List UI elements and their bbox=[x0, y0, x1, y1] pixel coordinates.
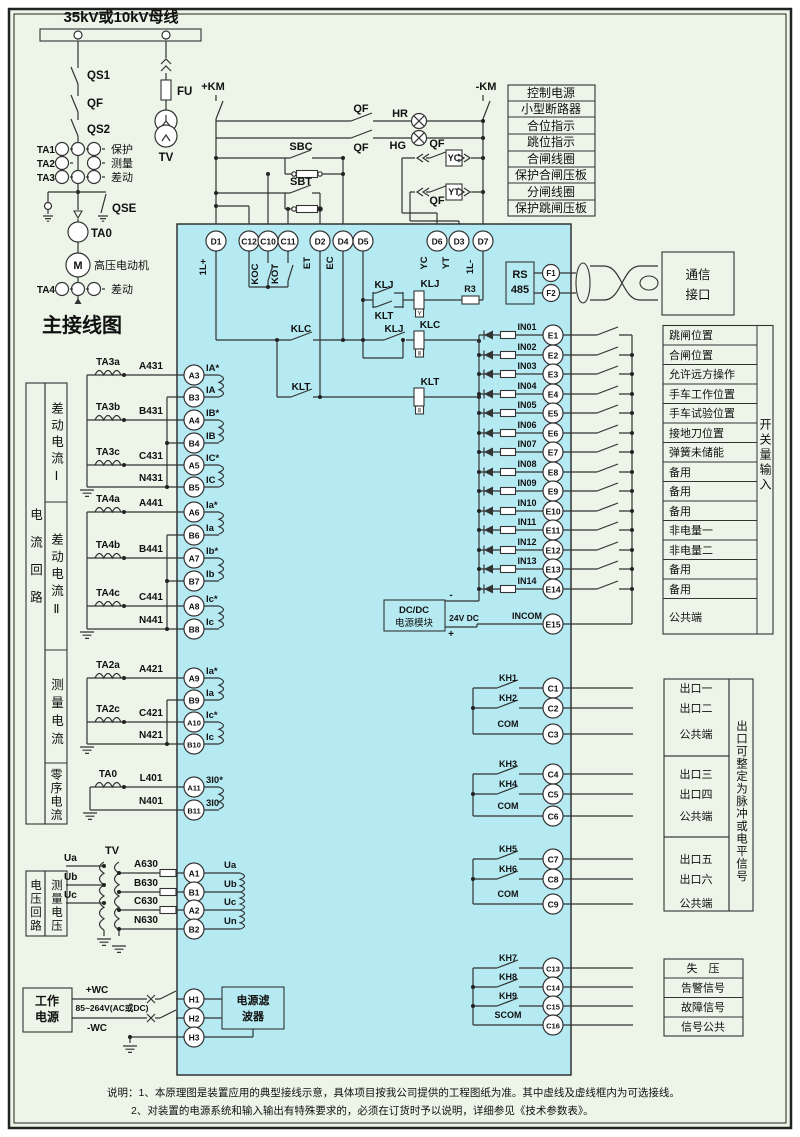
svg-text:IN14: IN14 bbox=[517, 576, 536, 586]
svg-text:测量: 测量 bbox=[111, 157, 133, 170]
svg-text:测量电流: 测量电流 bbox=[49, 678, 63, 750]
svg-text:合位指示: 合位指示 bbox=[527, 118, 575, 133]
sbt-button-label: SBT bbox=[290, 176, 312, 188]
svg-text:COM: COM bbox=[498, 801, 519, 811]
svg-text:KLJ: KLJ bbox=[385, 324, 404, 335]
qs1-label: QS1 bbox=[87, 70, 111, 82]
svg-text:Ua: Ua bbox=[64, 853, 77, 864]
qf-contact-label: QF bbox=[429, 195, 445, 207]
svg-text:分闸线圈: 分闸线圈 bbox=[527, 185, 575, 199]
svg-text:N421: N421 bbox=[139, 730, 163, 741]
svg-text:故障信号: 故障信号 bbox=[681, 1000, 725, 1014]
svg-text:差动电流Ⅱ: 差动电流Ⅱ bbox=[49, 533, 63, 621]
svg-text:C12: C12 bbox=[241, 237, 257, 247]
svg-text:A10: A10 bbox=[187, 719, 201, 728]
svg-text:保护跳闸压板: 保护跳闸压板 bbox=[515, 201, 587, 215]
svg-text:电流回路: 电流回路 bbox=[28, 508, 42, 618]
svg-text:D3: D3 bbox=[454, 237, 465, 247]
svg-text:E2: E2 bbox=[548, 351, 559, 361]
svg-text:A6: A6 bbox=[189, 508, 200, 518]
svg-text:C14: C14 bbox=[546, 984, 561, 993]
svg-text:差动: 差动 bbox=[111, 170, 133, 184]
svg-text:KLJ: KLJ bbox=[421, 279, 440, 290]
svg-text:D2: D2 bbox=[315, 237, 326, 247]
svg-text:485: 485 bbox=[511, 284, 529, 296]
fu-fuse bbox=[161, 80, 171, 100]
svg-text:备用: 备用 bbox=[669, 484, 691, 498]
svg-text:F2: F2 bbox=[546, 289, 556, 298]
svg-text:IN03: IN03 bbox=[517, 361, 536, 371]
svg-text:Uc: Uc bbox=[64, 890, 77, 901]
output-side-label: 出口可整定为脉冲或电平信号 bbox=[735, 719, 748, 882]
svg-text:B1: B1 bbox=[189, 888, 200, 898]
svg-text:IA*: IA* bbox=[206, 363, 220, 374]
ta0-label: TA0 bbox=[91, 228, 112, 240]
svg-text:E3: E3 bbox=[548, 370, 559, 380]
svg-text:A2: A2 bbox=[189, 906, 200, 916]
svg-text:接地刀位置: 接地刀位置 bbox=[669, 426, 724, 440]
svg-text:备用: 备用 bbox=[669, 465, 691, 479]
sub-1lminus: 1L- bbox=[465, 260, 476, 274]
svg-text:IN13: IN13 bbox=[517, 556, 536, 566]
svg-text:控制电源: 控制电源 bbox=[527, 86, 575, 100]
km-plus-label: +KM bbox=[201, 81, 225, 93]
svg-text:小型断路器: 小型断路器 bbox=[521, 101, 581, 116]
svg-text:TA4c: TA4c bbox=[96, 588, 120, 599]
klt-coil bbox=[414, 388, 424, 406]
svg-text:Ⅱ: Ⅱ bbox=[418, 351, 421, 358]
svg-text:E4: E4 bbox=[548, 390, 559, 400]
svg-text:B630: B630 bbox=[134, 878, 158, 889]
svg-text:N630: N630 bbox=[134, 915, 158, 926]
svg-text:B441: B441 bbox=[139, 544, 163, 555]
qf-contact-label: QF bbox=[429, 138, 445, 150]
svg-text:Ib*: Ib* bbox=[206, 546, 218, 557]
svg-text:工作: 工作 bbox=[35, 993, 59, 1008]
svg-text:KLT: KLT bbox=[421, 377, 440, 388]
svg-text:TA4b: TA4b bbox=[96, 540, 120, 551]
svg-text:E8: E8 bbox=[548, 468, 559, 478]
svg-text:Ic*: Ic* bbox=[206, 710, 218, 721]
svg-text:Ub: Ub bbox=[224, 879, 237, 890]
svg-text:KH4: KH4 bbox=[499, 779, 517, 789]
hr-lamp-label: HR bbox=[392, 108, 408, 120]
svg-text:电源: 电源 bbox=[35, 1009, 59, 1024]
svg-text:E9: E9 bbox=[548, 487, 559, 497]
svg-text:C16: C16 bbox=[546, 1022, 560, 1031]
svg-text:B2: B2 bbox=[189, 925, 200, 935]
svg-text:3I0*: 3I0* bbox=[206, 775, 223, 786]
svg-text:B8: B8 bbox=[189, 625, 200, 635]
tv-label: TV bbox=[159, 152, 174, 164]
svg-text:Uc: Uc bbox=[224, 897, 236, 908]
note-line-2: 2、对装置的电源系统和输入输出有特殊要求的，必须在订货时予以说明，详细参见《技术… bbox=[131, 1104, 594, 1117]
klj-coil bbox=[414, 291, 424, 309]
svg-text:A4: A4 bbox=[189, 416, 200, 426]
svg-text:E15: E15 bbox=[545, 620, 560, 630]
svg-text:C5: C5 bbox=[548, 790, 559, 800]
svg-text:C4: C4 bbox=[548, 770, 559, 780]
sub-koc: KOC bbox=[250, 263, 261, 284]
svg-text:TA1: TA1 bbox=[37, 145, 56, 156]
svg-text:IN04: IN04 bbox=[517, 381, 536, 391]
svg-text:IN08: IN08 bbox=[517, 459, 536, 469]
svg-text:Un: Un bbox=[224, 916, 237, 927]
svg-text:Y: Y bbox=[417, 311, 422, 318]
svg-text:A421: A421 bbox=[139, 664, 163, 675]
svg-text:公共端: 公共端 bbox=[680, 897, 713, 910]
svg-text:出口二: 出口二 bbox=[680, 701, 713, 715]
svg-text:公共端: 公共端 bbox=[669, 611, 702, 624]
svg-text:备用: 备用 bbox=[669, 582, 691, 596]
svg-text:N401: N401 bbox=[139, 796, 163, 807]
qse-label: QSE bbox=[112, 203, 137, 215]
svg-text:R3: R3 bbox=[464, 284, 476, 294]
svg-text:L401: L401 bbox=[140, 773, 163, 784]
svg-text:Ia*: Ia* bbox=[206, 666, 218, 677]
svg-text:IN06: IN06 bbox=[517, 420, 536, 430]
svg-text:IN05: IN05 bbox=[517, 400, 536, 410]
svg-text:N431: N431 bbox=[139, 473, 163, 484]
svg-text:测量电压: 测量电压 bbox=[50, 879, 63, 933]
svg-text:差动: 差动 bbox=[111, 282, 133, 296]
svg-text:B10: B10 bbox=[187, 741, 201, 750]
svg-text:C10: C10 bbox=[260, 237, 276, 247]
svg-text:IN10: IN10 bbox=[517, 498, 536, 508]
svg-text:B7: B7 bbox=[189, 577, 200, 587]
svg-text:H3: H3 bbox=[189, 1033, 200, 1043]
svg-text:Ia: Ia bbox=[206, 688, 215, 699]
klc-coil bbox=[414, 331, 424, 349]
svg-text:IC*: IC* bbox=[206, 453, 220, 464]
svg-text:KLJ: KLJ bbox=[375, 280, 394, 291]
svg-text:备用: 备用 bbox=[669, 562, 691, 576]
svg-text:C9: C9 bbox=[548, 900, 559, 910]
svg-text:IN09: IN09 bbox=[517, 478, 536, 488]
svg-text:Ib: Ib bbox=[206, 569, 215, 580]
svg-text:IN07: IN07 bbox=[517, 439, 536, 449]
svg-text:信号公共: 信号公共 bbox=[681, 1021, 725, 1034]
svg-text:+WC: +WC bbox=[86, 985, 109, 996]
svg-text:弹簧未储能: 弹簧未储能 bbox=[669, 445, 724, 459]
svg-text:3I0: 3I0 bbox=[206, 798, 219, 809]
svg-text:INCOM: INCOM bbox=[512, 611, 542, 621]
svg-text:TA0: TA0 bbox=[99, 769, 118, 780]
svg-text:D1: D1 bbox=[211, 237, 222, 247]
svg-text:Ia*: Ia* bbox=[206, 500, 218, 511]
svg-text:D6: D6 bbox=[432, 237, 443, 247]
svg-text:KH7: KH7 bbox=[499, 953, 517, 963]
svg-text:COM: COM bbox=[498, 889, 519, 899]
svg-text:TA3c: TA3c bbox=[96, 447, 120, 458]
svg-text:E12: E12 bbox=[545, 546, 560, 556]
svg-text:合闸线圈: 合闸线圈 bbox=[527, 151, 575, 166]
svg-text:E6: E6 bbox=[548, 429, 559, 439]
svg-text:手车试验位置: 手车试验位置 bbox=[669, 406, 735, 420]
svg-text:IN12: IN12 bbox=[517, 537, 536, 547]
svg-text:DC/DC: DC/DC bbox=[399, 605, 429, 616]
svg-text:TA3b: TA3b bbox=[96, 402, 120, 413]
svg-text:KH8: KH8 bbox=[499, 972, 517, 982]
svg-text:TA4a: TA4a bbox=[96, 494, 120, 505]
svg-text:24V DC: 24V DC bbox=[449, 613, 479, 623]
svg-text:手车工作位置: 手车工作位置 bbox=[669, 387, 735, 401]
svg-text:E13: E13 bbox=[545, 565, 560, 575]
svg-text:非电量一: 非电量一 bbox=[669, 524, 713, 537]
svg-text:Ua: Ua bbox=[224, 860, 237, 871]
motor-label: 高压电动机 bbox=[94, 258, 149, 272]
svg-text:D4: D4 bbox=[338, 237, 349, 247]
svg-text:KH6: KH6 bbox=[499, 864, 517, 874]
svg-text:C2: C2 bbox=[548, 704, 559, 714]
svg-text:C441: C441 bbox=[139, 592, 163, 603]
svg-text:KH9: KH9 bbox=[499, 991, 517, 1001]
sub-yt: YT bbox=[441, 257, 452, 269]
svg-text:B11: B11 bbox=[187, 807, 200, 816]
svg-text:IA: IA bbox=[206, 385, 216, 396]
svg-text:出口一: 出口一 bbox=[680, 681, 713, 695]
svg-text:D5: D5 bbox=[358, 237, 369, 247]
svg-text:H1: H1 bbox=[189, 995, 200, 1005]
svg-text:合闸位置: 合闸位置 bbox=[669, 348, 713, 362]
svg-text:E1: E1 bbox=[548, 331, 559, 341]
svg-text:KH5: KH5 bbox=[499, 844, 517, 854]
svg-text:出口四: 出口四 bbox=[680, 787, 713, 801]
svg-text:H2: H2 bbox=[189, 1014, 200, 1024]
svg-text:跳位指示: 跳位指示 bbox=[527, 134, 575, 149]
svg-text:F1: F1 bbox=[546, 269, 556, 278]
svg-text:IN11: IN11 bbox=[518, 517, 537, 527]
schematic-page: 35kV或10kV母线 QS1 QF QS2 TA1 保护 TA2 测量 TA3… bbox=[0, 0, 800, 1137]
svg-text:Ⅱ: Ⅱ bbox=[418, 408, 421, 415]
qf-contact-label: QF bbox=[353, 142, 369, 154]
svg-text:接口: 接口 bbox=[685, 287, 710, 302]
svg-text:A630: A630 bbox=[134, 859, 158, 870]
svg-text:跳闸位置: 跳闸位置 bbox=[669, 328, 713, 342]
svg-text:N441: N441 bbox=[139, 615, 163, 626]
svg-text:SCOM: SCOM bbox=[495, 1010, 522, 1020]
svg-text:IB*: IB* bbox=[206, 408, 220, 419]
svg-text:电压回路: 电压回路 bbox=[29, 879, 42, 933]
svg-text:C421: C421 bbox=[139, 708, 163, 719]
km-minus-label: -KM bbox=[476, 81, 497, 93]
svg-text:IN02: IN02 bbox=[517, 342, 536, 352]
hg-lamp-label: HG bbox=[390, 140, 407, 152]
svg-text:A441: A441 bbox=[139, 498, 163, 509]
tv-label: TV bbox=[105, 845, 120, 857]
svg-text:KLT: KLT bbox=[375, 311, 394, 322]
fu-label: FU bbox=[177, 86, 192, 98]
svg-text:C630: C630 bbox=[134, 896, 158, 907]
svg-text:RS: RS bbox=[512, 269, 527, 281]
svg-text:B5: B5 bbox=[189, 483, 200, 493]
svg-text:IN01: IN01 bbox=[517, 322, 536, 332]
svg-text:Ic*: Ic* bbox=[206, 594, 218, 605]
svg-text:C3: C3 bbox=[548, 730, 559, 740]
svg-text:A5: A5 bbox=[189, 461, 200, 471]
svg-text:C11: C11 bbox=[280, 237, 295, 247]
svg-text:B431: B431 bbox=[139, 406, 163, 417]
svg-text:KH2: KH2 bbox=[499, 693, 517, 703]
svg-text:A7: A7 bbox=[189, 554, 200, 564]
ta0-ct bbox=[68, 222, 88, 242]
qs2-label: QS2 bbox=[87, 124, 110, 136]
svg-text:Ub: Ub bbox=[64, 872, 77, 883]
svg-text:允许远方操作: 允许远方操作 bbox=[669, 367, 735, 381]
svg-text:A11: A11 bbox=[187, 784, 200, 793]
svg-text:IB: IB bbox=[206, 431, 216, 442]
note-line-1: 说明：1、本原理图是装置应用的典型接线示意，具体项目按我公司提供的工程图纸为准。… bbox=[107, 1086, 680, 1099]
qf-contact-label: QF bbox=[353, 103, 369, 115]
svg-text:TA2a: TA2a bbox=[96, 660, 120, 671]
svg-text:A431: A431 bbox=[139, 361, 163, 372]
wiring-diagram: 35kV或10kV母线 QS1 QF QS2 TA1 保护 TA2 测量 TA3… bbox=[0, 0, 800, 1137]
svg-text:Ia: Ia bbox=[206, 523, 215, 534]
arrester bbox=[45, 203, 52, 210]
svg-text:出口五: 出口五 bbox=[680, 852, 713, 866]
sub-kot: KOT bbox=[270, 264, 281, 284]
svg-text:KH1: KH1 bbox=[499, 673, 517, 683]
svg-text:B9: B9 bbox=[189, 696, 200, 706]
svg-text:TA4: TA4 bbox=[37, 285, 56, 296]
svg-text:出口六: 出口六 bbox=[680, 872, 713, 886]
sub-ec: EC bbox=[325, 256, 336, 269]
svg-text:A3: A3 bbox=[189, 371, 200, 381]
svg-text:TA3: TA3 bbox=[37, 173, 56, 184]
svg-text:告警信号: 告警信号 bbox=[681, 981, 725, 995]
svg-text:保护: 保护 bbox=[111, 142, 133, 156]
svg-text:C6: C6 bbox=[548, 812, 559, 822]
svg-text:C1: C1 bbox=[548, 684, 559, 694]
svg-text:B6: B6 bbox=[189, 531, 200, 541]
svg-text:C15: C15 bbox=[546, 1003, 560, 1012]
svg-text:M: M bbox=[73, 260, 82, 272]
svg-text:E10: E10 bbox=[545, 507, 560, 517]
svg-text:+: + bbox=[448, 629, 454, 640]
svg-text:电源模块: 电源模块 bbox=[395, 617, 434, 629]
svg-text:A9: A9 bbox=[189, 674, 200, 684]
svg-text:85~264V(AC或DC): 85~264V(AC或DC) bbox=[76, 1003, 149, 1013]
svg-text:出口三: 出口三 bbox=[680, 767, 713, 781]
svg-text:KLC: KLC bbox=[420, 320, 441, 331]
svg-text:Ic: Ic bbox=[206, 732, 214, 743]
din-side-label: 开关量输入 bbox=[758, 418, 772, 493]
svg-text:C7: C7 bbox=[548, 855, 559, 865]
svg-text:E14: E14 bbox=[545, 585, 560, 595]
bus-title: 35kV或10kV母线 bbox=[63, 8, 178, 26]
main-diagram-title: 主接线图 bbox=[42, 313, 122, 337]
svg-text:波器: 波器 bbox=[242, 1009, 265, 1023]
svg-text:B4: B4 bbox=[189, 439, 200, 449]
svg-text:B3: B3 bbox=[189, 393, 200, 403]
svg-text:D7: D7 bbox=[478, 237, 489, 247]
svg-text:E11: E11 bbox=[546, 526, 561, 536]
svg-text:备用: 备用 bbox=[669, 504, 691, 518]
sub-et: ET bbox=[302, 257, 313, 269]
svg-text:E7: E7 bbox=[548, 448, 559, 458]
svg-text:公共端: 公共端 bbox=[680, 728, 713, 741]
svg-text:KLC: KLC bbox=[291, 324, 312, 335]
svg-text:C8: C8 bbox=[548, 875, 559, 885]
svg-text:通信: 通信 bbox=[685, 268, 710, 282]
svg-text:A8: A8 bbox=[189, 602, 200, 612]
svg-text:公共端: 公共端 bbox=[680, 810, 713, 823]
qf-label: QF bbox=[87, 98, 103, 110]
sbc-button-label: SBC bbox=[289, 141, 312, 153]
svg-text:IC: IC bbox=[206, 475, 216, 486]
svg-text:-WC: -WC bbox=[87, 1023, 107, 1034]
svg-text:TA2c: TA2c bbox=[96, 704, 120, 715]
r3-resistor bbox=[462, 296, 479, 304]
svg-text:保护合闸压板: 保护合闸压板 bbox=[515, 167, 587, 182]
svg-text:Ic: Ic bbox=[206, 617, 214, 628]
svg-text:失 压: 失 压 bbox=[687, 962, 720, 975]
svg-text:非电量二: 非电量二 bbox=[669, 544, 713, 557]
svg-text:差动电流Ⅰ: 差动电流Ⅰ bbox=[49, 402, 63, 487]
svg-text:电源滤: 电源滤 bbox=[237, 993, 270, 1007]
sub-1lplus: 1L+ bbox=[198, 258, 209, 275]
svg-text:零序电流: 零序电流 bbox=[49, 768, 63, 822]
svg-text:C431: C431 bbox=[139, 451, 163, 462]
sub-yc: YC bbox=[419, 256, 430, 269]
svg-text:-: - bbox=[449, 590, 452, 601]
svg-text:E5: E5 bbox=[548, 409, 559, 419]
svg-text:C13: C13 bbox=[546, 965, 560, 974]
svg-text:TA2: TA2 bbox=[37, 159, 56, 170]
svg-text:KLT: KLT bbox=[292, 382, 311, 393]
svg-text:A1: A1 bbox=[189, 869, 200, 879]
svg-text:KH3: KH3 bbox=[499, 759, 517, 769]
svg-text:TA3a: TA3a bbox=[96, 357, 120, 368]
svg-text:COM: COM bbox=[498, 719, 519, 729]
